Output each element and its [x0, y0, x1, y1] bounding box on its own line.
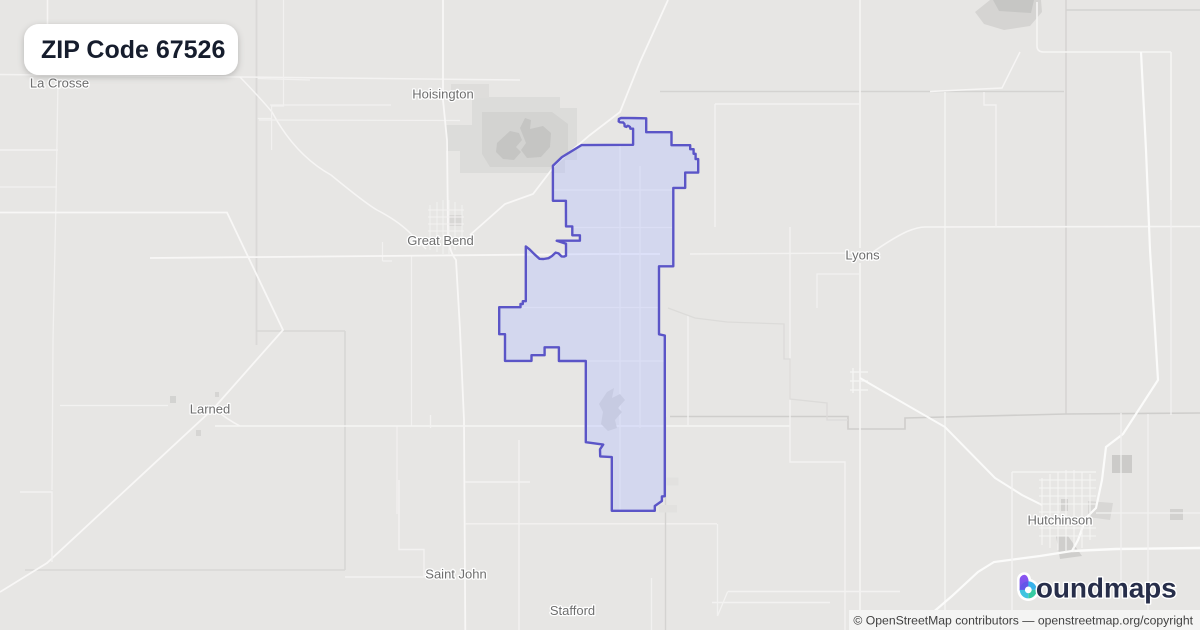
svg-text:Stafford: Stafford: [550, 603, 595, 618]
svg-text:Hoisington: Hoisington: [412, 87, 473, 102]
svg-text:Larned: Larned: [190, 402, 230, 417]
svg-text:Saint John: Saint John: [425, 567, 486, 582]
svg-text:Hutchinson: Hutchinson: [1027, 513, 1092, 528]
svg-text:© OpenStreetMap contributors —: © OpenStreetMap contributors — openstree…: [853, 614, 1193, 628]
svg-text:Lyons: Lyons: [845, 248, 880, 263]
svg-text:ZIP Code 67526: ZIP Code 67526: [41, 36, 225, 64]
svg-text:oundmaps: oundmaps: [1036, 573, 1177, 604]
svg-text:La Crosse: La Crosse: [30, 76, 89, 91]
svg-text:Great Bend: Great Bend: [407, 233, 474, 248]
